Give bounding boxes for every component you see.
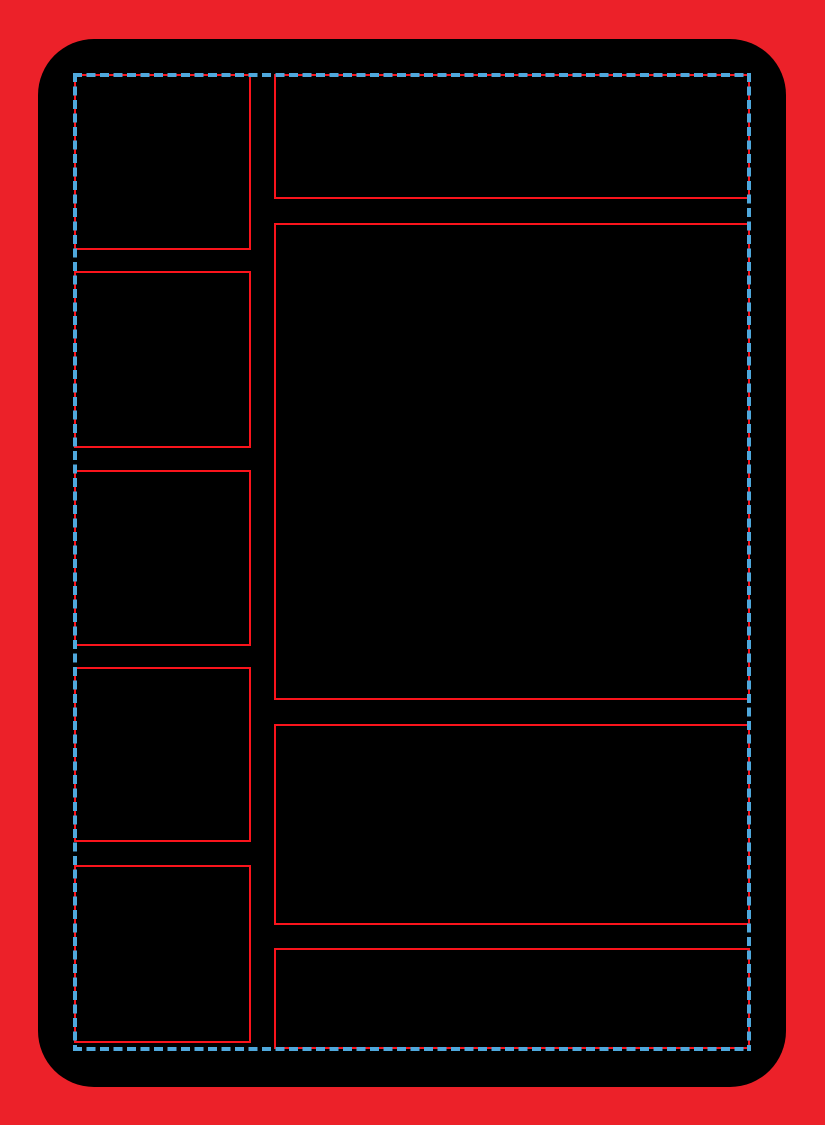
bleed-background [0,0,825,1125]
right-frame-text-panel [274,724,750,925]
left-frame-box-5 [74,865,251,1043]
right-frame-header-panel [274,74,750,199]
right-frame-footer-panel [274,948,750,1049]
left-frame-box-3 [74,470,251,646]
left-frame-box-1 [74,74,251,250]
left-frame-box-2 [74,271,251,448]
right-frame-image-panel [274,223,750,700]
card-body [38,39,786,1087]
left-frame-box-4 [74,667,251,842]
